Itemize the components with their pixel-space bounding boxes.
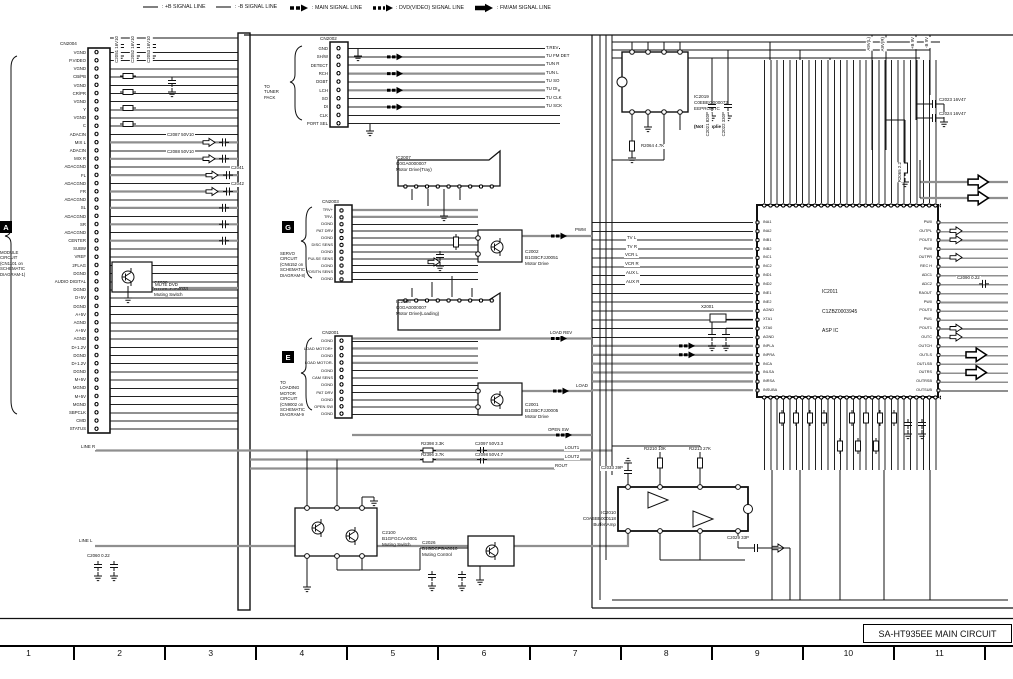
pin-label: A+5V [26,327,86,335]
pin-label: AUDIO DIGITAL [26,277,86,285]
pin-label: D+1.2V [26,343,86,351]
pin-label: ADACIN [26,146,86,154]
pin-label: VGND [26,97,86,105]
pin-label: CAM SENS [271,374,333,381]
signal-label: T.REV [545,46,559,51]
pin-name: INB2 [763,244,803,253]
signal-label: TU SO [545,79,560,84]
pin-label: SO [273,94,328,102]
cn2004-pins [93,48,100,433]
pin-name: XTA0 [763,324,803,333]
page-title: SA-HT935EE MAIN CIRCUIT [878,629,996,639]
legend-label: : MAIN SIGNAL LINE [312,5,362,11]
signal-label: TU SCK [545,104,563,109]
pin-name: ADC2 [890,280,932,289]
ic2011-desc: ASP IC [822,328,857,335]
part-label: R2396 3.7K [420,453,445,458]
pin-name: INRSA [763,377,803,386]
section-tag-a: A [0,221,12,233]
pin-label: ADACGND [26,196,86,204]
ic-label-line: Muting Switch [154,292,188,298]
signal-label: TU FM DET [545,54,570,59]
pin-label: ADACGND [26,212,86,220]
ic-label-line: Muting Switch [382,542,417,548]
part-label: C2053 16V10 [146,36,153,63]
ic-label-line: Muting Control [422,552,458,558]
signal-label: LOAD [575,384,589,389]
ic2011-left-pin-names: INA1INA2INB1INB2INC1INC2IND1IND2INE1INE2… [763,218,803,395]
pin-label: MIX L [26,138,86,146]
pin-name: PW0 [890,218,932,227]
part-label: C2097 50V3.3 [474,442,504,447]
schematic-page: : +B SIGNAL LINE : -B SIGNAL LINE : MAIN… [0,0,1013,679]
pin-label: M+5V [26,392,86,400]
pin-name: POUT1 [890,324,932,333]
signal-label: TV L [626,236,637,241]
pin-label: FL [26,171,86,179]
signal-label: TUN R [545,62,560,67]
ic2011-left-pins [754,218,761,395]
pin-name: ADC1 [890,271,932,280]
part-label: R2064 4.7K [640,144,665,149]
ic-label-line: Buffer Amp [572,522,616,528]
pin-label: DGND [271,220,333,227]
ruler-number: 6 [439,647,530,660]
cn2004-pin-labels: VGNDP.VIDEOVGNDCB/PBVGNDCR/PRVGNDYVGNDCA… [26,48,86,433]
ic2011-ref: IC2011 [822,289,857,296]
pin-label: DGND [271,352,333,359]
dashed-arrow-symbol [373,3,393,13]
cn2002-ref: CN2002 [320,36,337,41]
pin-name: OUTLS [890,350,932,359]
signal-label: TUN L [545,71,560,76]
pin-label: SUBW [26,245,86,253]
ic2010-label: IC2010C0ABBB000118Buffer Amp [572,492,616,528]
ruler-cells: 1234567891011 [0,647,1013,660]
pin-label: CR/PR [26,89,86,97]
cn2004-ref: CN2004 [60,41,77,46]
ic-label-line: B1GDCFGA0010 [422,546,458,552]
cn2003-ref: CN2003 [322,199,339,204]
ruler-number: 3 [166,647,257,660]
cn2003-pins [338,207,345,283]
pin-label: A+5V [26,310,86,318]
pin-name: IND2 [763,280,803,289]
pin-name: RAOUT [890,288,932,297]
ruler-number: 9 [713,647,804,660]
pin-label: PAT DRV [271,227,333,234]
ruler-number: 2 [75,647,166,660]
pin-label: DGND [26,351,86,359]
part-label: R2213 27K [688,447,712,452]
pin-label: AGND [26,335,86,343]
cn2001-pins [338,337,345,418]
ic-label-line: Motor Drive(Tray) [396,167,432,173]
ic2011-right-pins [935,218,942,395]
grid-ruler: 1234567891011 [0,645,1013,663]
signal-label: ROUT [554,464,568,469]
pin-name: OUTSUB [890,386,932,395]
pin-label: DETECT [273,61,328,69]
ic2019-label-lines: IC2019C0EBEG000072EEPROM IC [694,76,728,112]
pin-name: INA2 [763,226,803,235]
ic2011-right-pin-names: PW0OUTPLPOUT0PW0OUTPRREC HADC1ADC2RAOUTP… [890,218,932,395]
pin-label: POSITN SENS [271,269,333,276]
pin-label: P.VIDEO [26,56,86,64]
pin-label: ADACIN [26,130,86,138]
pin-label: VGND [26,81,86,89]
q2026-label: C2026B1GDCFGA0010Muting Control [422,522,458,558]
signal-label: PWM [574,228,587,233]
legend-label: : DVD(VIDEO) SIGNAL LINE [396,5,464,11]
signal-label: LINE R [80,445,96,450]
pin-label: OPEN SW [271,403,333,410]
pin-label: SH/W [273,53,328,61]
ic-label-line: Motor Drive [525,261,558,267]
pin-label: SR [26,220,86,228]
part-label: C2088 50V10 [166,150,195,155]
pin-name: AGND [763,306,803,315]
signal-label: LINE L [78,539,93,544]
legend-label: : -B SIGNAL LINE [235,4,277,10]
q2001-label: C2001B1GBCFJJ0005Motor Drive [525,384,558,420]
pin-label: DGND [271,262,333,269]
cn2003-pin-labels: TRV+TRV-DGNDPAT DRVDGNDDISC SENSDGNDPULS… [271,207,333,283]
pin-label: DGND [271,234,333,241]
signal-label: MUTE DVD [154,283,179,288]
pin-label: VREF [26,253,86,261]
line-symbol [216,3,232,11]
pin-label: M+5V [26,376,86,384]
pin-label: RCH [273,69,328,77]
legend-item-dvd: : DVD(VIDEO) SIGNAL LINE [373,3,464,13]
ruler-number: 1 [0,647,75,660]
part-label: A9V(L) [866,37,873,51]
part-label: C2042 [230,182,245,187]
ic2007-pins [400,183,498,190]
cn2001-ref: CN2001 [322,330,339,335]
pin-label: DGND [271,337,333,344]
ruler-number: 8 [622,647,713,660]
ic2011-label: IC2011 C1ZBZ0003945 ASP IC [822,276,857,348]
pin-label: SBPCLK [26,408,86,416]
ruler-number: 11 [895,647,986,660]
pin-label: DGND [271,410,333,417]
pin-label: TRV+ [271,207,333,214]
part-label: -B 9V [924,37,931,48]
signal-label: OPEN SW [547,428,570,433]
pin-name: POUT0 [890,306,932,315]
pin-name: INC1 [763,253,803,262]
pin-label: STATUS [26,425,86,433]
pin-label: LOAD MOTOR- [271,359,333,366]
pin-label: SL [26,204,86,212]
signal-label: VCR R [624,262,640,267]
pin-name: OUTC [890,333,932,342]
pin-name: PW1 [890,315,932,324]
signal-label: LOUT2 [564,455,580,460]
part-label: R2065 2.2 [897,162,904,182]
ruler-number: 7 [531,647,622,660]
part-label: C2021 820P [705,112,712,136]
legend-item-fmam: : FM/AM SIGNAL LINE [474,3,551,13]
pin-label: D+1.2V [26,359,86,367]
signal-label: TV R [626,245,638,250]
signal-label: AUX L [625,271,640,276]
ruler-number: 4 [257,647,348,660]
ic-label-line: Motor Drive [525,414,558,420]
pin-label: CLK [273,111,328,119]
pin-label: DGND [26,286,86,294]
pin-label: CENTER [26,237,86,245]
part-label: X2001 [700,305,715,310]
line-symbol [143,3,159,11]
pin-label: ADACGND [26,163,86,171]
signal-label: LOAD REV [549,331,573,336]
pin-label: MIX R [26,155,86,163]
part-label: R2210 10K [643,447,667,452]
cn2002-pins [335,44,342,128]
pin-label: DGND [271,366,333,373]
pin-label: DGND [271,381,333,388]
pin-name: INA1 [763,218,803,227]
legend-label: : FM/AM SIGNAL LINE [497,5,551,11]
part-label: +B 9V [910,37,917,49]
pin-label: D+5V [26,294,86,302]
pin-name: INPRA [763,350,803,359]
pin-name: PW0 [890,297,932,306]
pin-name: INCA [763,359,803,368]
legend-item-main: : MAIN SIGNAL LINE [289,3,362,13]
pin-name: INC2 [763,262,803,271]
part-label: C2098 50V4.7 [474,453,504,458]
part-label: C2041 [230,166,245,171]
ic2011-part: C1ZBZ0003945 [822,309,857,316]
cn2001-pin-labels: DGNDLOAD MOTOR+DGNDLOAD MOTOR-DGNDCAM SE… [271,337,333,417]
ic-label-line: B1GFGCAA0001 [382,536,417,542]
schematic-artwork [0,0,1013,679]
pin-name: IND1 [763,271,803,280]
part-label: C2060 0.22 [86,554,111,559]
part-label: C2090 0.22 [956,276,981,281]
pin-name: PW0 [890,244,932,253]
part-label: C2033 39P [600,466,624,471]
pin-label: LCH [273,86,328,94]
pin-label: MGND [26,384,86,392]
pin-label: PULSE SENS [271,255,333,262]
pin-name: XTA1 [763,315,803,324]
part-label: C2022 330P [721,112,728,136]
section-tag-g: G [282,221,294,233]
ic2011-bottom-pins [761,394,941,401]
pin-label: DISC SENS [271,241,333,248]
q2100-label: C2100B1GFGCAA0001Muting Switch [382,512,417,548]
pin-label: ADACGND [26,179,86,187]
pin-label: DGND [26,302,86,310]
legend-item-minus-b: : -B SIGNAL LINE [216,3,277,11]
pin-label: DGND [26,269,86,277]
pin-name: OUTLSB [890,359,932,368]
pin-label: CMD [26,417,86,425]
pin-label: AGND [26,318,86,326]
pin-label: DGBT [273,78,328,86]
pin-name: OUTPR [890,253,932,262]
pin-label: GND [273,44,328,52]
pin-label: LOAD MOTOR+ [271,345,333,352]
pin-label: C [26,122,86,130]
signal-label: TU DI [545,87,558,92]
signal-label: TU CLK [545,96,563,101]
pin-label: VGND [26,65,86,73]
title-block: SA-HT935EE MAIN CIRCUIT [863,624,1012,643]
pin-name: OUTPL [890,226,932,235]
part-label: R2398 3.3K [420,442,445,447]
legend-item-plus-b: : +B SIGNAL LINE [143,3,206,11]
part-label: C2024 16V47 [938,112,967,117]
signal-label: VCR L [624,253,639,258]
ic2006-label: IC2006C0GA0000007Motor Drive(Loading) [396,281,439,317]
signal-label: LOUT1 [564,446,580,451]
pin-name: OUTRSB [890,377,932,386]
pin-label: 2FLAG [26,261,86,269]
pin-name: AGND [763,333,803,342]
part-label: C2087 50V10 [166,133,195,138]
pin-name: OUTCH [890,341,932,350]
ic-label-line: B1GBCFJJ0051 [525,255,558,261]
ruler-number: 5 [348,647,439,660]
dashed-arrow-symbol [289,3,309,13]
ic2007-label: IC2007C0GA0000007Motor Drive(Tray) [396,137,432,173]
pin-label: DGND [271,396,333,403]
pin-name: OUTRS [890,368,932,377]
pin-label: Y [26,106,86,114]
pin-name: INB1 [763,235,803,244]
ic-label-line: C0EBEG000072 [694,100,728,106]
pin-name: INE1 [763,288,803,297]
cn2002-pin-labels: GNDSH/WDETECTRCHDGBTLCHSODICLKPORT SEL [273,44,328,127]
pin-name: INLSA [763,368,803,377]
legend-label: : +B SIGNAL LINE [162,4,206,10]
pin-name: POUT0 [890,235,932,244]
pin-label: CB/PB [26,73,86,81]
pin-label: DGND [271,275,333,282]
pin-label: VGND [26,48,86,56]
pin-label: PORT SEL [273,119,328,127]
pin-label: DGND [271,248,333,255]
pin-label: PAT DRV [271,388,333,395]
pin-label: FR [26,187,86,195]
pin-name: INSUBA [763,386,803,395]
pin-name: REC H [890,262,932,271]
pin-name: INE2 [763,297,803,306]
pin-label: VGND [26,114,86,122]
q2038-label: C2038B1GBCFJA0033Muting Switch [154,262,188,298]
part-label: A9V(R) [880,37,887,51]
part-label: C2052 16V10 [130,36,137,63]
part-label: C2051 16V10 [114,36,121,63]
ic2011-top-pins [761,202,941,209]
solid-arrow-symbol [474,3,494,13]
pin-label: DI [273,103,328,111]
signal-label: AUX R [625,280,640,285]
pin-label: MGND [26,400,86,408]
q2002-label: C2002B1GBCFJJ0051Motor Drive [525,231,558,267]
section-tag-e: E [282,351,294,363]
part-label: C2023 16V47 [938,98,967,103]
pin-label: TRV- [271,213,333,220]
ruler-number: 10 [804,647,895,660]
ic-label-line: B1GBCFJJ0005 [525,408,558,414]
pin-name: INPLA [763,341,803,350]
ic-label-line: Motor Drive(Loading) [396,311,439,317]
ic-label-line: EEPROM IC [694,106,728,112]
pin-label: ADACGND [26,228,86,236]
pin-label: DGND [26,368,86,376]
part-label: C2029 33P [726,536,750,541]
